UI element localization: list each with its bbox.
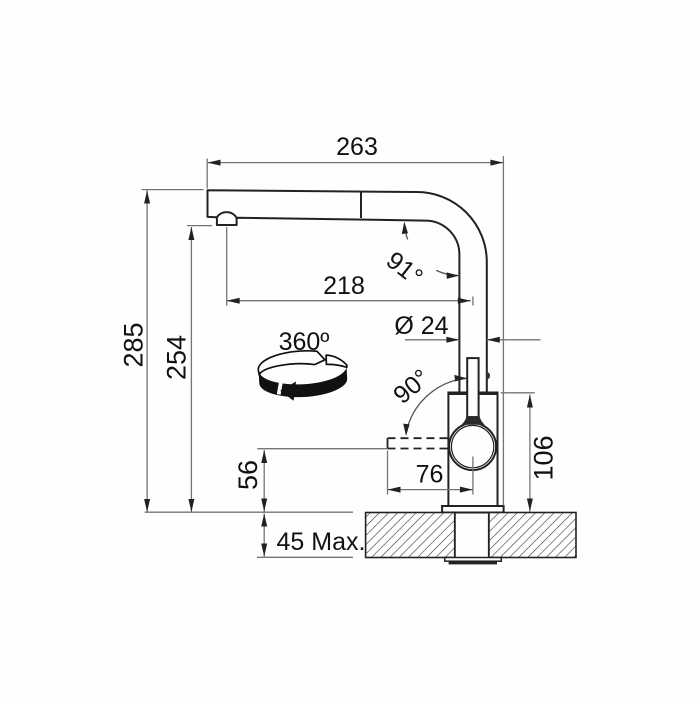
svg-text:263: 263: [336, 133, 378, 161]
svg-text:218: 218: [323, 272, 365, 300]
svg-text:106: 106: [529, 435, 559, 480]
svg-text:285: 285: [119, 322, 149, 367]
svg-text:45 Max.: 45 Max.: [277, 528, 366, 556]
svg-text:254: 254: [162, 335, 192, 380]
svg-text:Ø 24: Ø 24: [394, 312, 448, 340]
svg-text:76: 76: [416, 461, 444, 489]
svg-text:56: 56: [233, 460, 263, 490]
